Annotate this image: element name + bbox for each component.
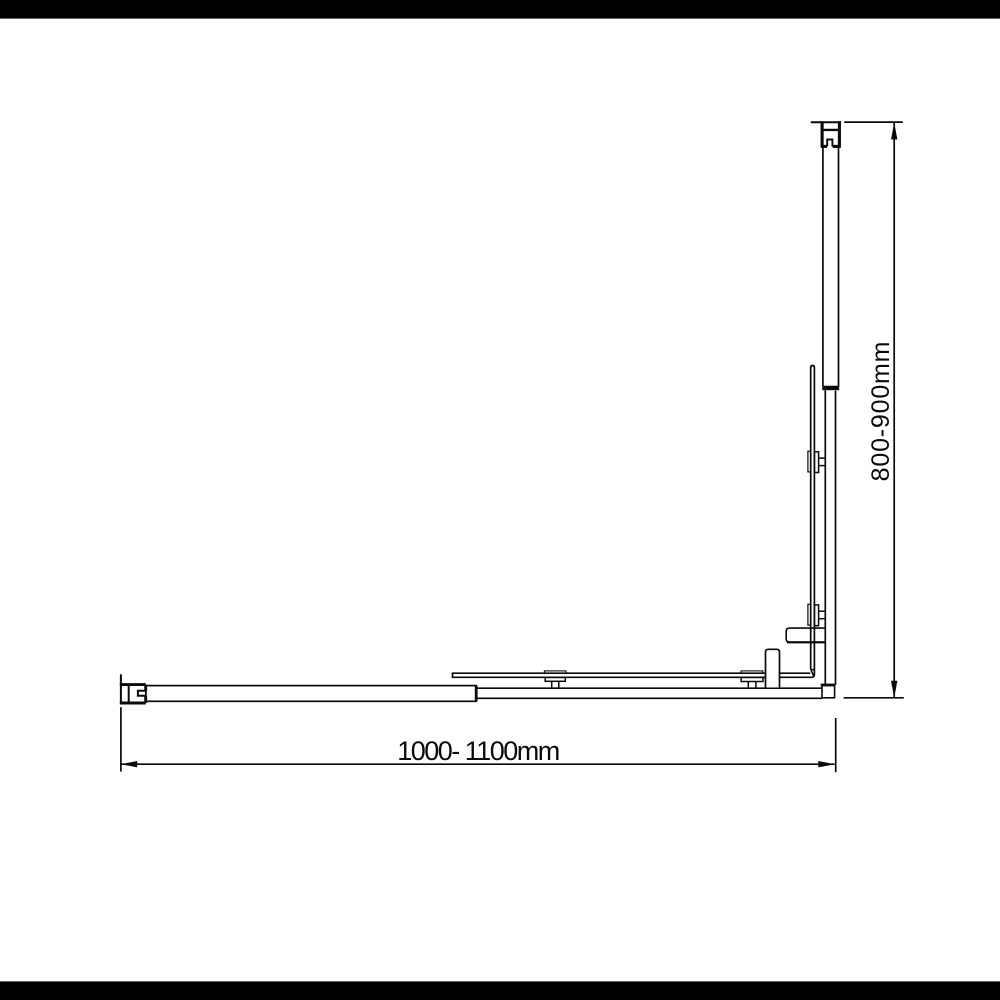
svg-text:800-900mm: 800-900mm bbox=[867, 341, 895, 482]
svg-text:1000- 1100mm: 1000- 1100mm bbox=[397, 736, 559, 766]
